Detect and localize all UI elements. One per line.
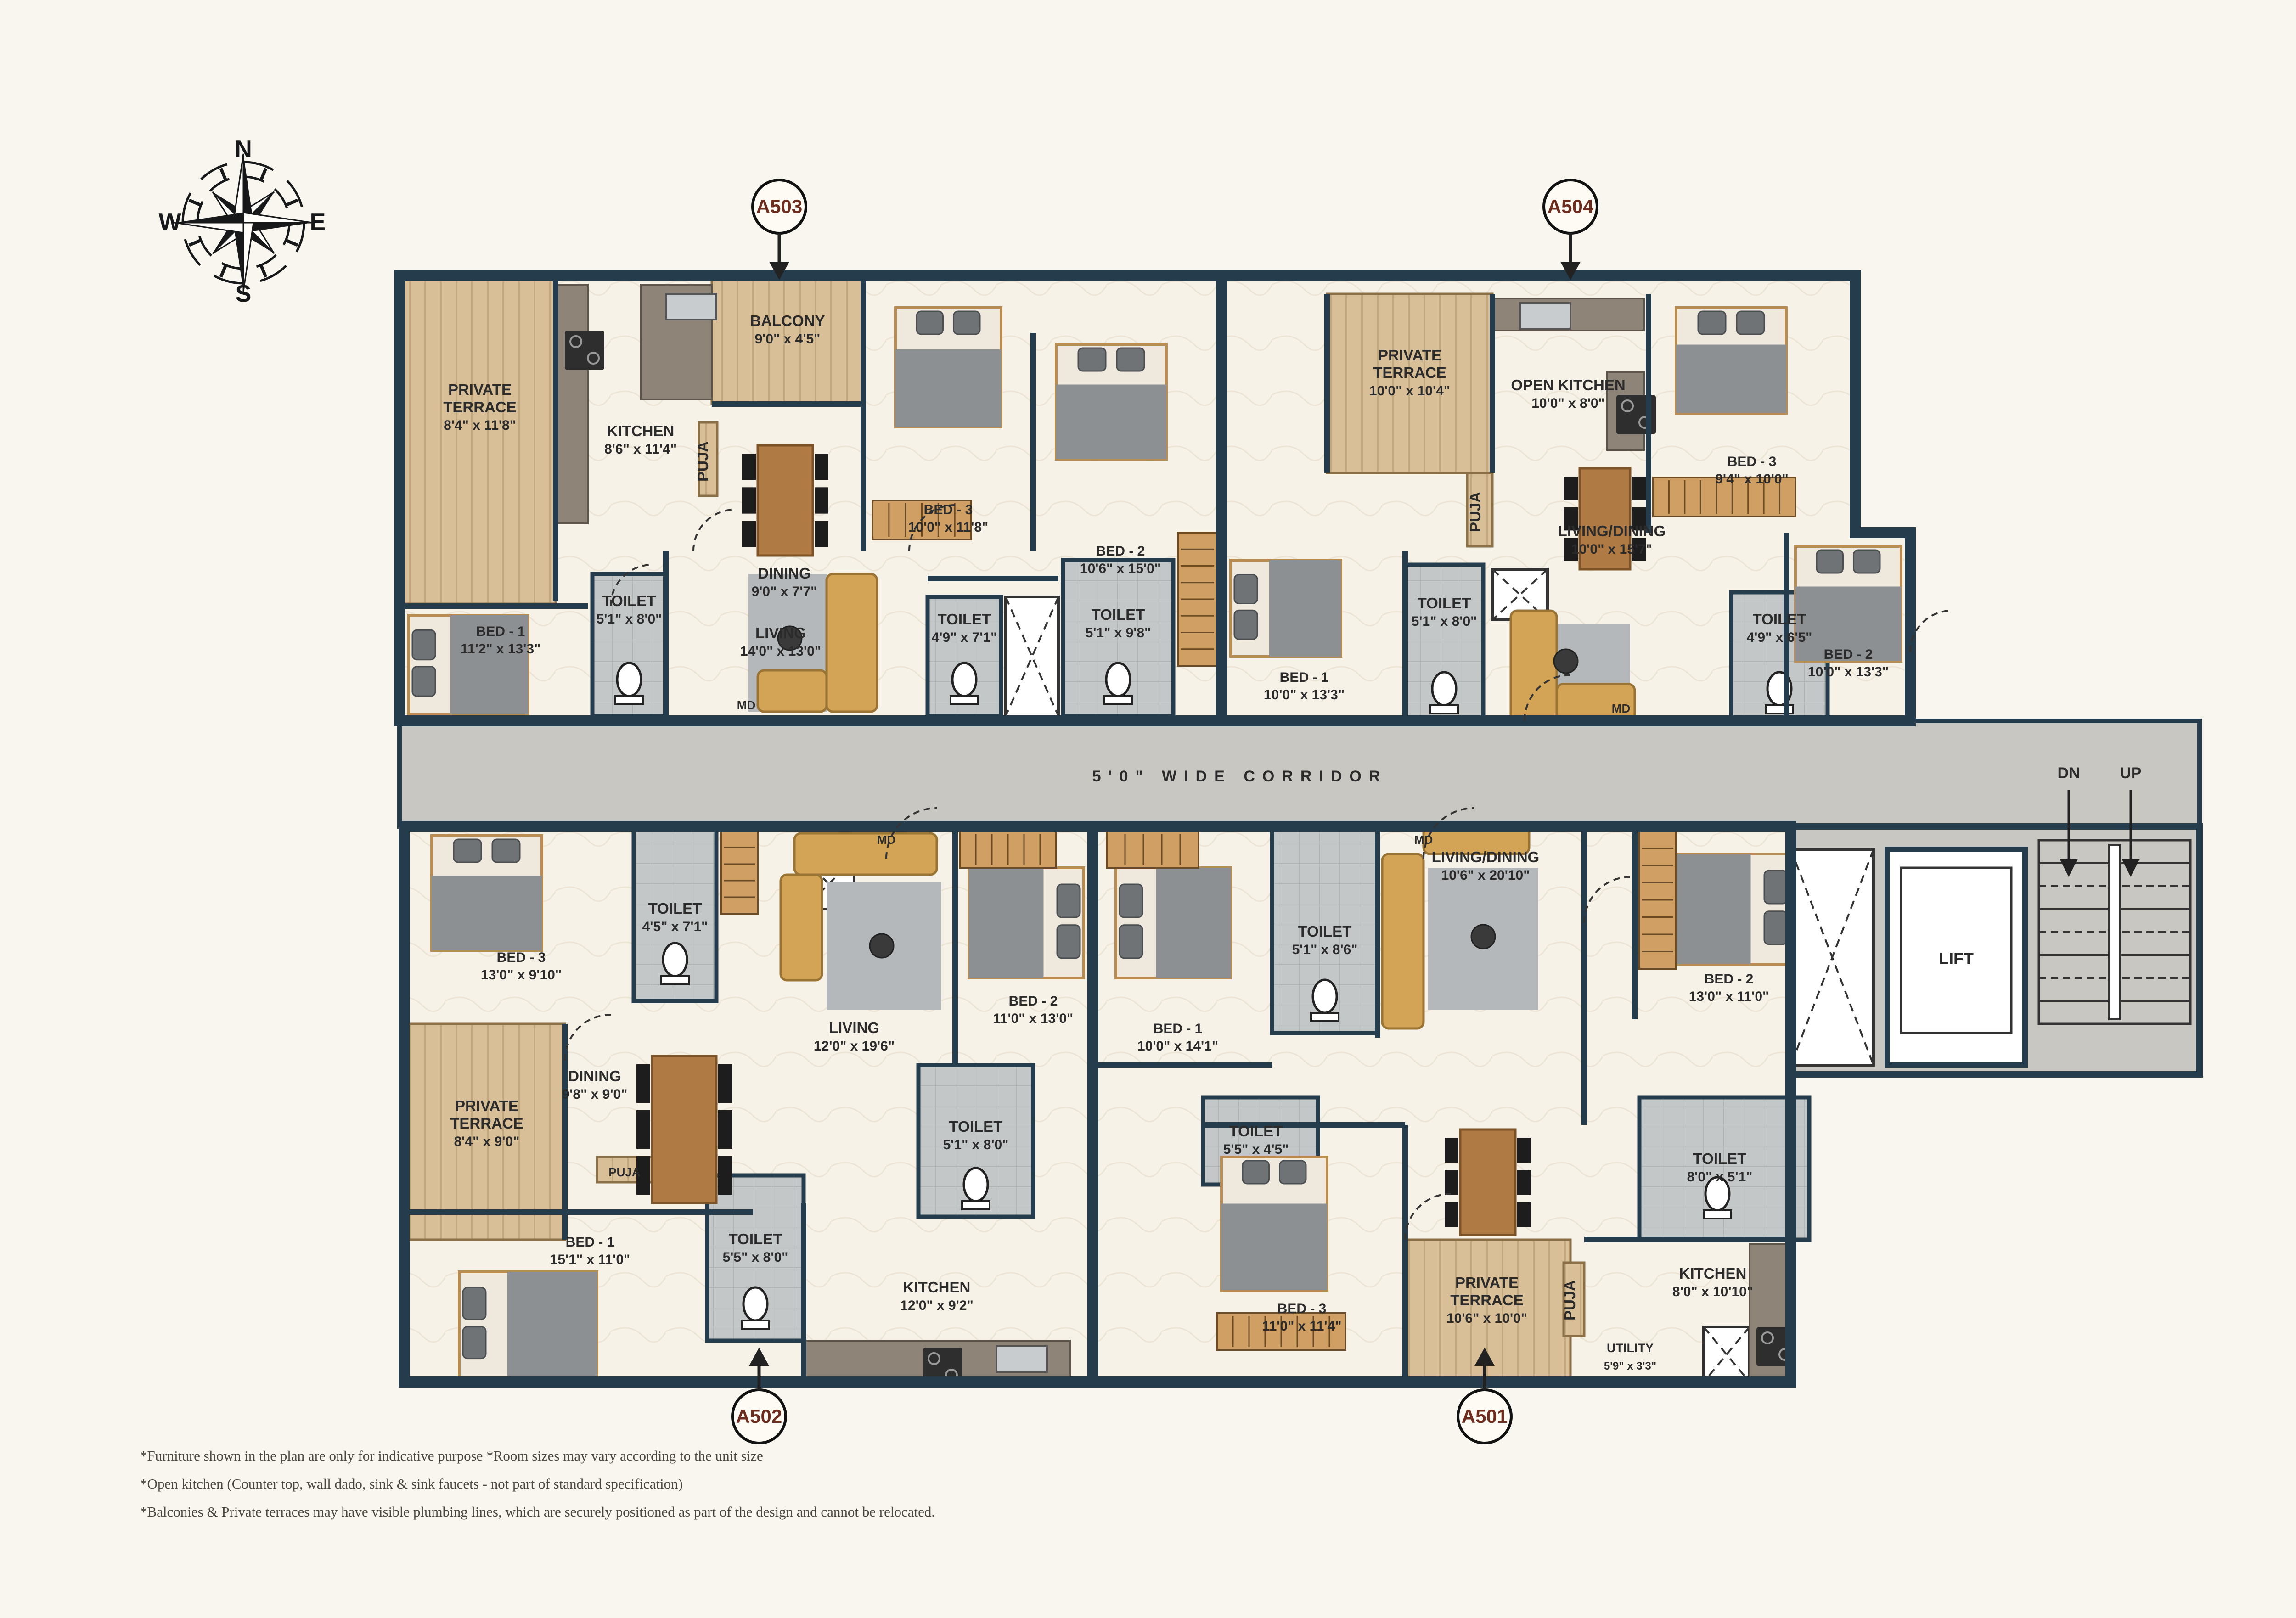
room-dimension: BED - 1 xyxy=(1280,670,1329,685)
room-label: TERRACE xyxy=(1373,364,1446,381)
room-label: PUJA xyxy=(608,1165,641,1179)
room-label: DINING xyxy=(758,565,811,582)
corridor-label: 5'0" WIDE CORRIDOR xyxy=(1092,768,1388,785)
room-dimension: 13'0" x 11'0" xyxy=(1689,989,1769,1004)
room-label: MD xyxy=(1414,833,1433,847)
room-dimension: 10'0" x 14'1" xyxy=(1137,1039,1218,1054)
room-label: LIVING xyxy=(829,1019,879,1036)
room-label: TOILET xyxy=(1418,595,1471,612)
room-dimension: 10'0" x 8'0" xyxy=(1531,396,1605,411)
room-dimension: 12'0" x 9'2" xyxy=(900,1298,974,1313)
room-label: MD xyxy=(737,698,755,712)
room-dimension: 10'6" x 20'10" xyxy=(1441,868,1530,883)
room-label: MD xyxy=(877,833,895,847)
footnote-line: *Balconies & Private terraces may have v… xyxy=(140,1498,935,1526)
stair-dn-label: DN xyxy=(2057,764,2080,782)
compass-letter: N xyxy=(235,136,252,163)
room-label: KITCHEN xyxy=(903,1279,971,1296)
compass-letter: W xyxy=(158,209,181,236)
room-dimension: 8'0" x 10'10" xyxy=(1672,1284,1753,1299)
room-dimension: 5'1" x 9'8" xyxy=(1086,625,1151,640)
room-label: TOILET xyxy=(602,592,656,609)
room-dimension: 4'9" x 7'1" xyxy=(932,630,997,645)
unit-marker: A504 xyxy=(1544,180,1597,280)
room-dimension: 8'4" x 9'0" xyxy=(454,1134,520,1149)
room-dimension: 9'8" x 9'0" xyxy=(562,1087,628,1102)
room-label: TOILET xyxy=(1092,606,1145,623)
unit-marker: A503 xyxy=(753,180,806,280)
room-label: LIVING/DINING xyxy=(1558,522,1666,539)
room-label: KITCHEN xyxy=(1679,1265,1747,1282)
room-dimension: 5'1" x 8'0" xyxy=(1412,614,1477,629)
room-dimension: BED - 3 xyxy=(497,950,546,965)
room-label: TERRACE xyxy=(443,399,517,416)
room-label: TERRACE xyxy=(1450,1292,1524,1309)
room-dimension: 4'9" x 6'5" xyxy=(1747,630,1812,645)
room-dimension: 5'5" x 8'0" xyxy=(723,1250,788,1265)
room-dimension: 11'0" x 11'4" xyxy=(1262,1319,1342,1334)
room-dimension: 13'0" x 9'10" xyxy=(481,967,562,983)
room-label: KITCHEN xyxy=(607,422,675,439)
room-dimension: BED - 1 xyxy=(476,624,525,639)
lift-label: LIFT xyxy=(1939,949,1974,968)
footnote-line: *Furniture shown in the plan are only fo… xyxy=(140,1442,935,1470)
room-label: TOILET xyxy=(938,611,991,628)
room-dimension: 5'5" x 4'5" xyxy=(1223,1142,1289,1157)
stair-up-label: UP xyxy=(2120,764,2141,782)
room-dimension: 8'4" x 11'8" xyxy=(444,418,516,433)
room-dimension: 11'2" x 13'3" xyxy=(461,641,541,657)
room-label: PRIVATE xyxy=(1378,347,1441,364)
floor-plan: PRIVATETERRACE8'4" x 11'8"KITCHEN8'6" x … xyxy=(390,174,2227,1455)
room-dimension: 10'0" x 10'4" xyxy=(1369,383,1450,399)
room-dimension: 9'4" x 10'0" xyxy=(1715,472,1789,487)
room-label: PRIVATE xyxy=(1455,1274,1519,1291)
room-label: PRIVATE xyxy=(448,381,512,398)
room-label: TOILET xyxy=(729,1230,782,1247)
room-dimension: 10'6" x 15'0" xyxy=(1080,561,1161,576)
unit-marker-label: A502 xyxy=(736,1405,782,1427)
room-dimension: 14'0" x 13'0" xyxy=(740,644,821,659)
room-dimension: 5'1" x 8'0" xyxy=(943,1137,1009,1152)
poster-stage: NESW PRIVATETERRACE8'4" x 11'8"KITCHEN8'… xyxy=(0,0,2296,1618)
room-label: PUJA xyxy=(694,441,711,482)
unit-marker-label: A504 xyxy=(1548,196,1594,217)
room-label: TOILET xyxy=(1753,611,1806,628)
room-dimension: BED - 2 xyxy=(1705,972,1754,987)
room-label: OPEN KITCHEN xyxy=(1511,376,1625,393)
room-label: TOILET xyxy=(1229,1123,1283,1140)
room-dimension: BED - 2 xyxy=(1009,994,1058,1009)
room-dimension: 10'0" x 11'8" xyxy=(908,520,989,535)
footnotes: *Furniture shown in the plan are only fo… xyxy=(140,1442,935,1526)
room-dimension: 11'0" x 13'0" xyxy=(993,1011,1074,1026)
room-dimension: 9'0" x 4'5" xyxy=(755,331,821,347)
unit-marker-label: A503 xyxy=(756,196,802,217)
room-label: TOILET xyxy=(1298,923,1352,940)
room-dimension: BED - 3 xyxy=(924,502,973,517)
room-dimension: 4'5" x 7'1" xyxy=(642,919,708,934)
room-dimension: 5'1" x 8'0" xyxy=(597,612,662,627)
room-label: PUJA xyxy=(1467,492,1484,532)
room-label: BALCONY xyxy=(750,312,825,329)
room-dimension: 15'1" x 11'0" xyxy=(550,1252,630,1267)
compass-rose-icon: NESW xyxy=(152,129,335,312)
room-dimension: BED - 1 xyxy=(566,1235,615,1250)
footnote-line: *Open kitchen (Counter top, wall dado, s… xyxy=(140,1470,935,1498)
room-label: TOILET xyxy=(949,1118,1003,1135)
room-dimension: BED - 2 xyxy=(1824,647,1873,662)
room-label: DINING xyxy=(568,1067,621,1084)
room-label: PRIVATE xyxy=(455,1097,518,1114)
room-dimension: 10'6" x 10'0" xyxy=(1446,1311,1527,1326)
room-dimension: 8'0" x 5'1" xyxy=(1687,1169,1753,1185)
room-dimension: 12'0" x 19'6" xyxy=(814,1039,895,1054)
room-dimension: BED - 3 xyxy=(1277,1301,1327,1316)
room-dimension: 10'0" x 13'3" xyxy=(1808,664,1889,680)
room-dimension: 9'0" x 7'7" xyxy=(752,584,817,599)
room-label: PUJA xyxy=(1561,1280,1578,1320)
compass-letter: S xyxy=(236,281,252,307)
room-label: TERRACE xyxy=(450,1115,523,1132)
room-label: TOILET xyxy=(648,900,702,917)
room-dimension: 5'9" x 3'3" xyxy=(1604,1360,1656,1372)
room-dimension: BED - 1 xyxy=(1154,1021,1203,1036)
room-dimension: BED - 2 xyxy=(1096,544,1145,559)
compass-letter: E xyxy=(310,209,326,236)
room-dimension: 5'1" x 8'6" xyxy=(1292,942,1358,957)
room-label: MD xyxy=(1612,702,1630,715)
unit-marker-label: A501 xyxy=(1462,1405,1508,1427)
room-dimension: 10'0" x 15'7" xyxy=(1571,542,1652,557)
room-dimension: 10'0" x 13'3" xyxy=(1264,687,1345,702)
room-label: UTILITY xyxy=(1607,1341,1654,1355)
room-label: TOILET xyxy=(1693,1150,1747,1167)
room-dimension: 8'6" x 11'4" xyxy=(604,442,677,457)
room-dimension: BED - 3 xyxy=(1728,454,1777,469)
room-label: LIVING xyxy=(755,624,806,641)
room-label: LIVING/DINING xyxy=(1432,848,1540,865)
